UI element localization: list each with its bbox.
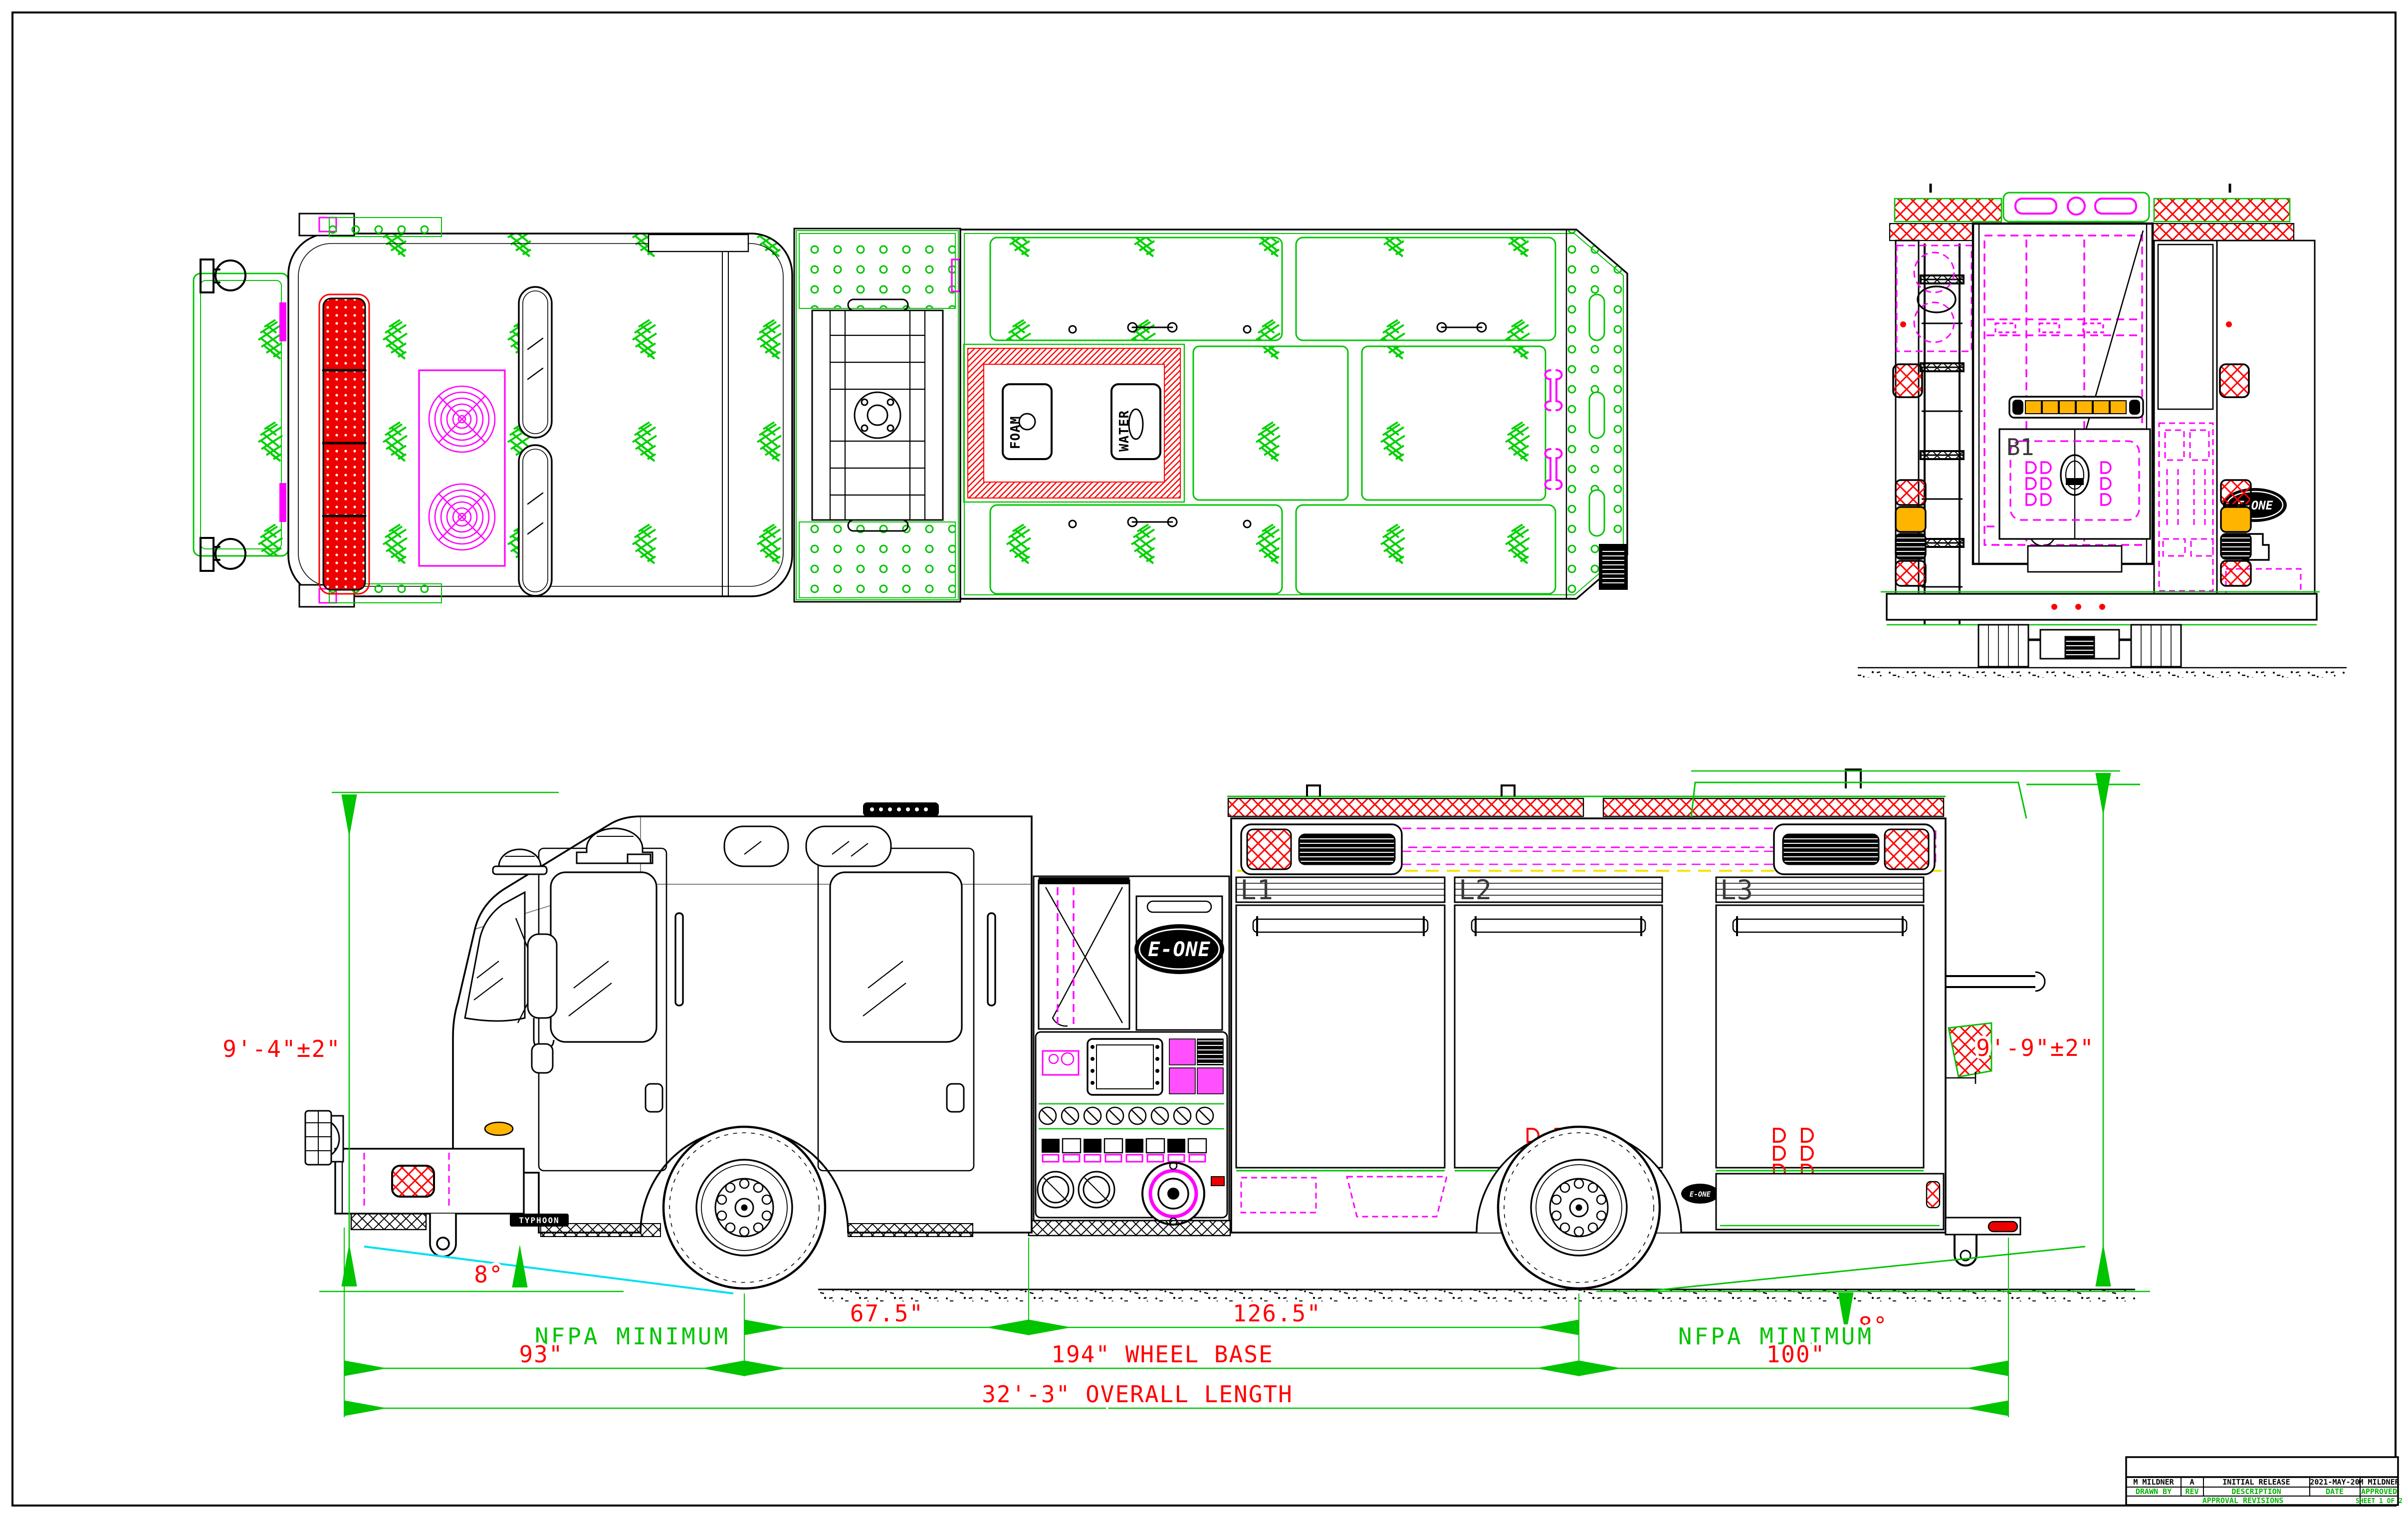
- eone-logo-text: E-ONE: [1148, 938, 1210, 961]
- top-front-bumper: [194, 259, 288, 571]
- departure-angle-line: [1644, 1247, 2085, 1291]
- rear-step-light: [1988, 1222, 2017, 1232]
- rear-hitch-detail: [1602, 548, 1624, 586]
- dim-axle-to-pump: 67.5": [850, 1300, 924, 1327]
- svg-text:E-ONE: E-ONE: [1690, 1191, 1711, 1199]
- upper-window: [724, 826, 788, 866]
- titleblock-approved-value: M MILDNER: [2359, 1478, 2400, 1487]
- front-intake: [305, 1111, 343, 1165]
- tow-eye-front: [430, 1214, 456, 1257]
- rear-access-ladder: [1921, 244, 1964, 625]
- rear-bumper: [1881, 592, 2320, 625]
- lower-rear-compartment: [1716, 1174, 1944, 1230]
- rear-view: E-ONE B1: [1858, 184, 2347, 678]
- bumper-light-magenta: [279, 302, 286, 341]
- dim-pump-to-rear-axle: 126.5": [1233, 1300, 1321, 1327]
- titleblock-rev-label: REV: [2185, 1487, 2198, 1496]
- water-fill-cover: WATER: [1111, 384, 1160, 459]
- fill-station: FOAM WATER: [964, 344, 1184, 502]
- rear-discharge-outlet: [1918, 286, 1956, 312]
- titleblock-date-value: 2021-MAY-20: [2310, 1478, 2359, 1487]
- side-pump-module: E-ONE: [1029, 876, 1230, 1236]
- hosebed-panel: [1296, 505, 1555, 594]
- cab-marker-light: [485, 1122, 513, 1135]
- rollup-door-l3: L3: [1716, 874, 1924, 1178]
- door-l3-label: L3: [1720, 874, 1753, 906]
- eone-logo-pump: E-ONE: [1134, 896, 1224, 1030]
- approach-angle-label: 8°: [474, 1261, 503, 1288]
- top-pump-walkway: [794, 229, 960, 602]
- dim-wheelbase: 194" WHEEL BASE: [1051, 1341, 1273, 1368]
- upper-window: [806, 826, 891, 866]
- crosslay-bed: [812, 299, 943, 531]
- deck-panel: [1193, 346, 1348, 500]
- drawing-sheet: FOAM WATER: [0, 0, 2408, 1517]
- height-front-label: 9'-4"±2": [222, 1035, 341, 1062]
- rear-axle: [1978, 625, 2181, 667]
- front-wheel: [663, 1127, 825, 1288]
- titleblock-drawn-by-label: DRAWN BY: [2136, 1487, 2172, 1496]
- door-l2-label: L2: [1459, 874, 1492, 906]
- nfpa-front-label: NFPA MINIMUM: [535, 1323, 730, 1350]
- dim-rear-overhang: 100": [1766, 1341, 1826, 1368]
- step-slot: [1589, 490, 1604, 536]
- pump-running-board: [1029, 1221, 1230, 1236]
- deck-panel: [1362, 346, 1545, 500]
- foam-fill-cover: FOAM: [1003, 384, 1052, 459]
- dim-front-overhang: 93": [519, 1341, 563, 1368]
- step-slot: [1589, 392, 1604, 438]
- rear-lightbar: [2003, 193, 2149, 222]
- bumper-warning-light: [392, 1166, 434, 1197]
- rollup-door-l1: L1: [1236, 874, 1445, 1171]
- eone-logo-side: E-ONE: [1681, 1184, 1719, 1204]
- upper-light-assembly-left: [1241, 824, 1402, 874]
- side-top-rails: [1227, 769, 2140, 818]
- titleblock-approved-label: APPROVED: [2361, 1487, 2397, 1496]
- dim-overall-length: 32'-3" OVERALL LENGTH: [982, 1381, 1293, 1408]
- roof-lightbar: [319, 294, 369, 594]
- titleblock-date-label: DATE: [2326, 1487, 2344, 1496]
- bumper-light-magenta: [279, 483, 286, 522]
- top-body: FOAM WATER: [960, 230, 1628, 599]
- pump-control-panel: [1036, 1032, 1227, 1225]
- top-view: FOAM WATER: [194, 214, 1628, 607]
- height-rear-label: 9'-9"±2": [1976, 1034, 2095, 1061]
- side-view: L1 L2 L3: [305, 769, 2140, 1301]
- cab-step: [848, 1224, 973, 1237]
- crew-door-window: [830, 872, 962, 1042]
- rear-traffic-advisor: [2009, 397, 2143, 418]
- rear-right-column: [2154, 241, 2217, 610]
- license-plate-holder: [2028, 546, 2122, 572]
- rear-compartment-b1: B1: [1999, 429, 2150, 539]
- compartment-b1-label: B1: [2006, 434, 2034, 461]
- step-slot: [1589, 294, 1604, 340]
- titleblock-revisions-label: APPROVAL REVISIONS: [2202, 1496, 2284, 1505]
- titleblock-sheet-label: SHEET 1 OF 2: [2356, 1498, 2403, 1505]
- titleblock-description-value: INITIAL RELEASE: [2222, 1478, 2290, 1487]
- ground-rear: [1858, 668, 2347, 678]
- hosebed-panel: [1296, 238, 1555, 340]
- titleblock-description-label: DESCRIPTION: [2231, 1487, 2281, 1496]
- top-cab: [288, 214, 792, 607]
- panel-light-red: [1211, 1177, 1224, 1186]
- front-door-window: [551, 872, 657, 1042]
- pump-hose-tray: [1039, 877, 1129, 1029]
- bumper-tread: [351, 1214, 426, 1230]
- steamer-intake: [1142, 1162, 1204, 1225]
- title-block: M MILDNER A INITIAL RELEASE 2021-MAY-20 …: [2126, 1457, 2403, 1505]
- foam-label: FOAM: [1008, 416, 1023, 449]
- upper-light-assembly-right: [1774, 824, 1935, 874]
- titleblock-drawn-by-value: M MILDNER: [2133, 1478, 2174, 1487]
- lower-marker-light: [1927, 1182, 1940, 1208]
- cab-step: [541, 1224, 660, 1237]
- titleblock-rev-value: A: [2189, 1478, 2194, 1487]
- door-l1-label: L1: [1240, 874, 1274, 906]
- rear-wheel: [1498, 1127, 1660, 1288]
- water-label: WATER: [1117, 410, 1132, 452]
